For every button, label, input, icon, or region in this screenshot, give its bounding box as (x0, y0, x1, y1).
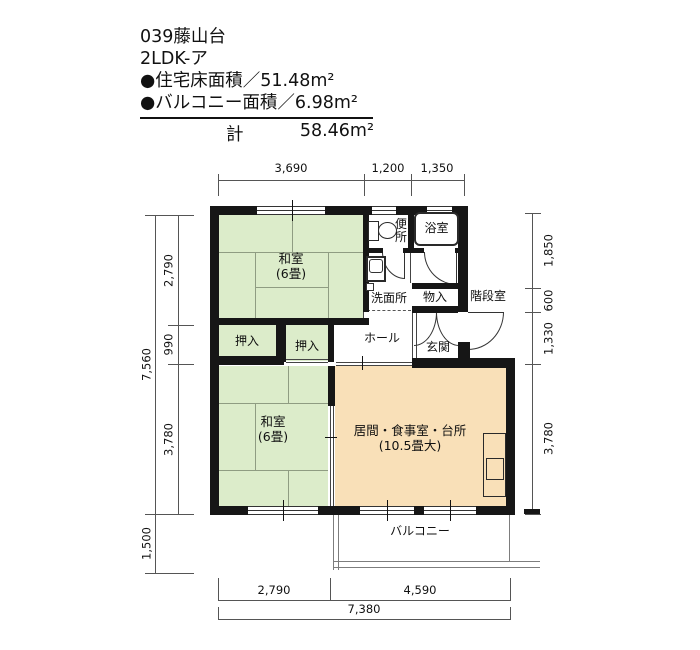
toilet-label: 便所 (394, 218, 408, 244)
balcony-rail-line (333, 567, 540, 568)
washbasin-bowl-icon (369, 259, 383, 273)
dimension-tick (525, 514, 541, 515)
total-underline (140, 117, 373, 119)
closet1-label: 押入 (217, 334, 277, 348)
dimension-tick (525, 364, 541, 365)
dimension-tick (218, 174, 219, 196)
balcony-line (509, 513, 510, 561)
washbasin-step-icon (366, 283, 374, 291)
wall (210, 506, 248, 515)
closet-sliding-door (286, 359, 328, 360)
balcony-area-line: ●バルコニー面積／6.98m² (140, 92, 358, 114)
window-center-tick (292, 200, 293, 221)
sliding-door-line (330, 406, 331, 506)
dimension-tick (510, 578, 511, 600)
layout-type: 2LDK-ア (140, 48, 358, 70)
wall (476, 506, 515, 515)
total-label: 計 (226, 121, 244, 146)
floor-area-line: ●住宅床面積／51.48m² (140, 70, 358, 92)
wall (412, 358, 515, 368)
kitchen-sink-icon (486, 458, 504, 480)
wall (506, 358, 515, 515)
dimension-line (218, 600, 511, 601)
window-center-tick (387, 500, 388, 521)
dimension-tick (464, 174, 465, 196)
washitsu1-name: 和室 (251, 251, 331, 266)
tatami-line (288, 366, 289, 403)
wall (363, 248, 383, 253)
project-name: 039藤山台 (140, 26, 358, 48)
window-center-tick (283, 500, 284, 521)
washitsu2-label: 和室 (6畳) (233, 414, 313, 444)
dim-left-1: 2,790 (163, 241, 176, 301)
dimension-line (155, 215, 156, 573)
closet-sliding-door (286, 362, 328, 363)
window (257, 206, 325, 215)
dimension-tick (218, 578, 219, 600)
dim-left-balcony: 1,500 (141, 514, 154, 574)
sliding-door-line (333, 406, 334, 506)
ldk-name: 居間・食事室・台所 (330, 423, 490, 438)
wall (408, 248, 424, 253)
wall (318, 506, 360, 515)
dim-left-3: 3,780 (163, 410, 176, 470)
washitsu1-size: (6畳) (251, 266, 331, 281)
bath-label: 浴室 (414, 221, 459, 235)
total-value: 58.46m² (278, 121, 374, 141)
dimension-tick (510, 607, 511, 619)
storage-label: 物入 (412, 290, 458, 304)
wall (412, 283, 458, 289)
window-center-tick (450, 500, 451, 521)
washitsu1-label: 和室 (6畳) (251, 251, 331, 281)
dim-left-total: 7,560 (141, 335, 154, 395)
dimension-tick (411, 174, 412, 196)
tatami-line (288, 470, 289, 506)
dimension-tick (364, 174, 365, 196)
partition-line (410, 250, 411, 283)
washitsu2-name: 和室 (233, 414, 313, 429)
wall (214, 206, 257, 215)
wall (214, 318, 369, 325)
dimension-tick (525, 288, 541, 289)
washitsu2-size: (6畳) (233, 429, 313, 444)
dimension-tick (330, 578, 331, 600)
closet2-label: 押入 (277, 339, 337, 353)
wall (414, 506, 424, 515)
title-block: 039藤山台 2LDK-ア ●住宅床面積／51.48m² ●バルコニー面積／6.… (140, 26, 358, 114)
ldk-size: (10.5畳大) (330, 438, 490, 453)
window (372, 206, 396, 215)
floor-plan-page: 039藤山台 2LDK-ア ●住宅床面積／51.48m² ●バルコニー面積／6.… (0, 0, 700, 650)
washroom-hall-boundary (367, 310, 411, 311)
stairwell-label: 階段室 (458, 289, 518, 303)
tatami-line (218, 470, 328, 471)
dim-left-2: 990 (163, 315, 176, 375)
entrance-label: 玄関 (408, 340, 468, 354)
dim-top-3: 1,350 (397, 162, 477, 175)
wall (328, 366, 335, 406)
sliding-door-line (336, 362, 412, 363)
dim-bottom-total: 7,380 (324, 603, 404, 616)
sliding-door-tick (362, 356, 363, 370)
tatami-line (255, 287, 329, 288)
washroom-label: 洗面所 (364, 291, 414, 305)
tatami-line (218, 403, 328, 404)
dim-bottom-2: 4,590 (380, 584, 460, 597)
ldk-label: 居間・食事室・台所 (10.5畳大) (330, 423, 490, 453)
wall (214, 356, 284, 365)
dim-right-3: 1,330 (543, 309, 556, 369)
sliding-door-line (336, 365, 412, 366)
dimension-tick (145, 215, 194, 216)
dimension-line (218, 619, 511, 620)
balcony-label: バルコニー (380, 524, 460, 538)
dim-bottom-1: 2,790 (234, 584, 314, 597)
dim-right-4: 3,780 (543, 409, 556, 469)
front-door-arc (468, 312, 504, 350)
dimension-line (218, 180, 464, 181)
dimension-tick (525, 312, 541, 313)
dim-top-1: 3,690 (251, 162, 331, 175)
dimension-tick (525, 213, 541, 214)
adjacent-wall-stub (524, 509, 540, 514)
hall-label: ホール (352, 331, 412, 345)
balcony-rail-line (333, 561, 540, 562)
wall (412, 306, 458, 313)
dimension-tick (218, 607, 219, 619)
wall (455, 248, 468, 253)
bath-door-arc (424, 252, 457, 285)
